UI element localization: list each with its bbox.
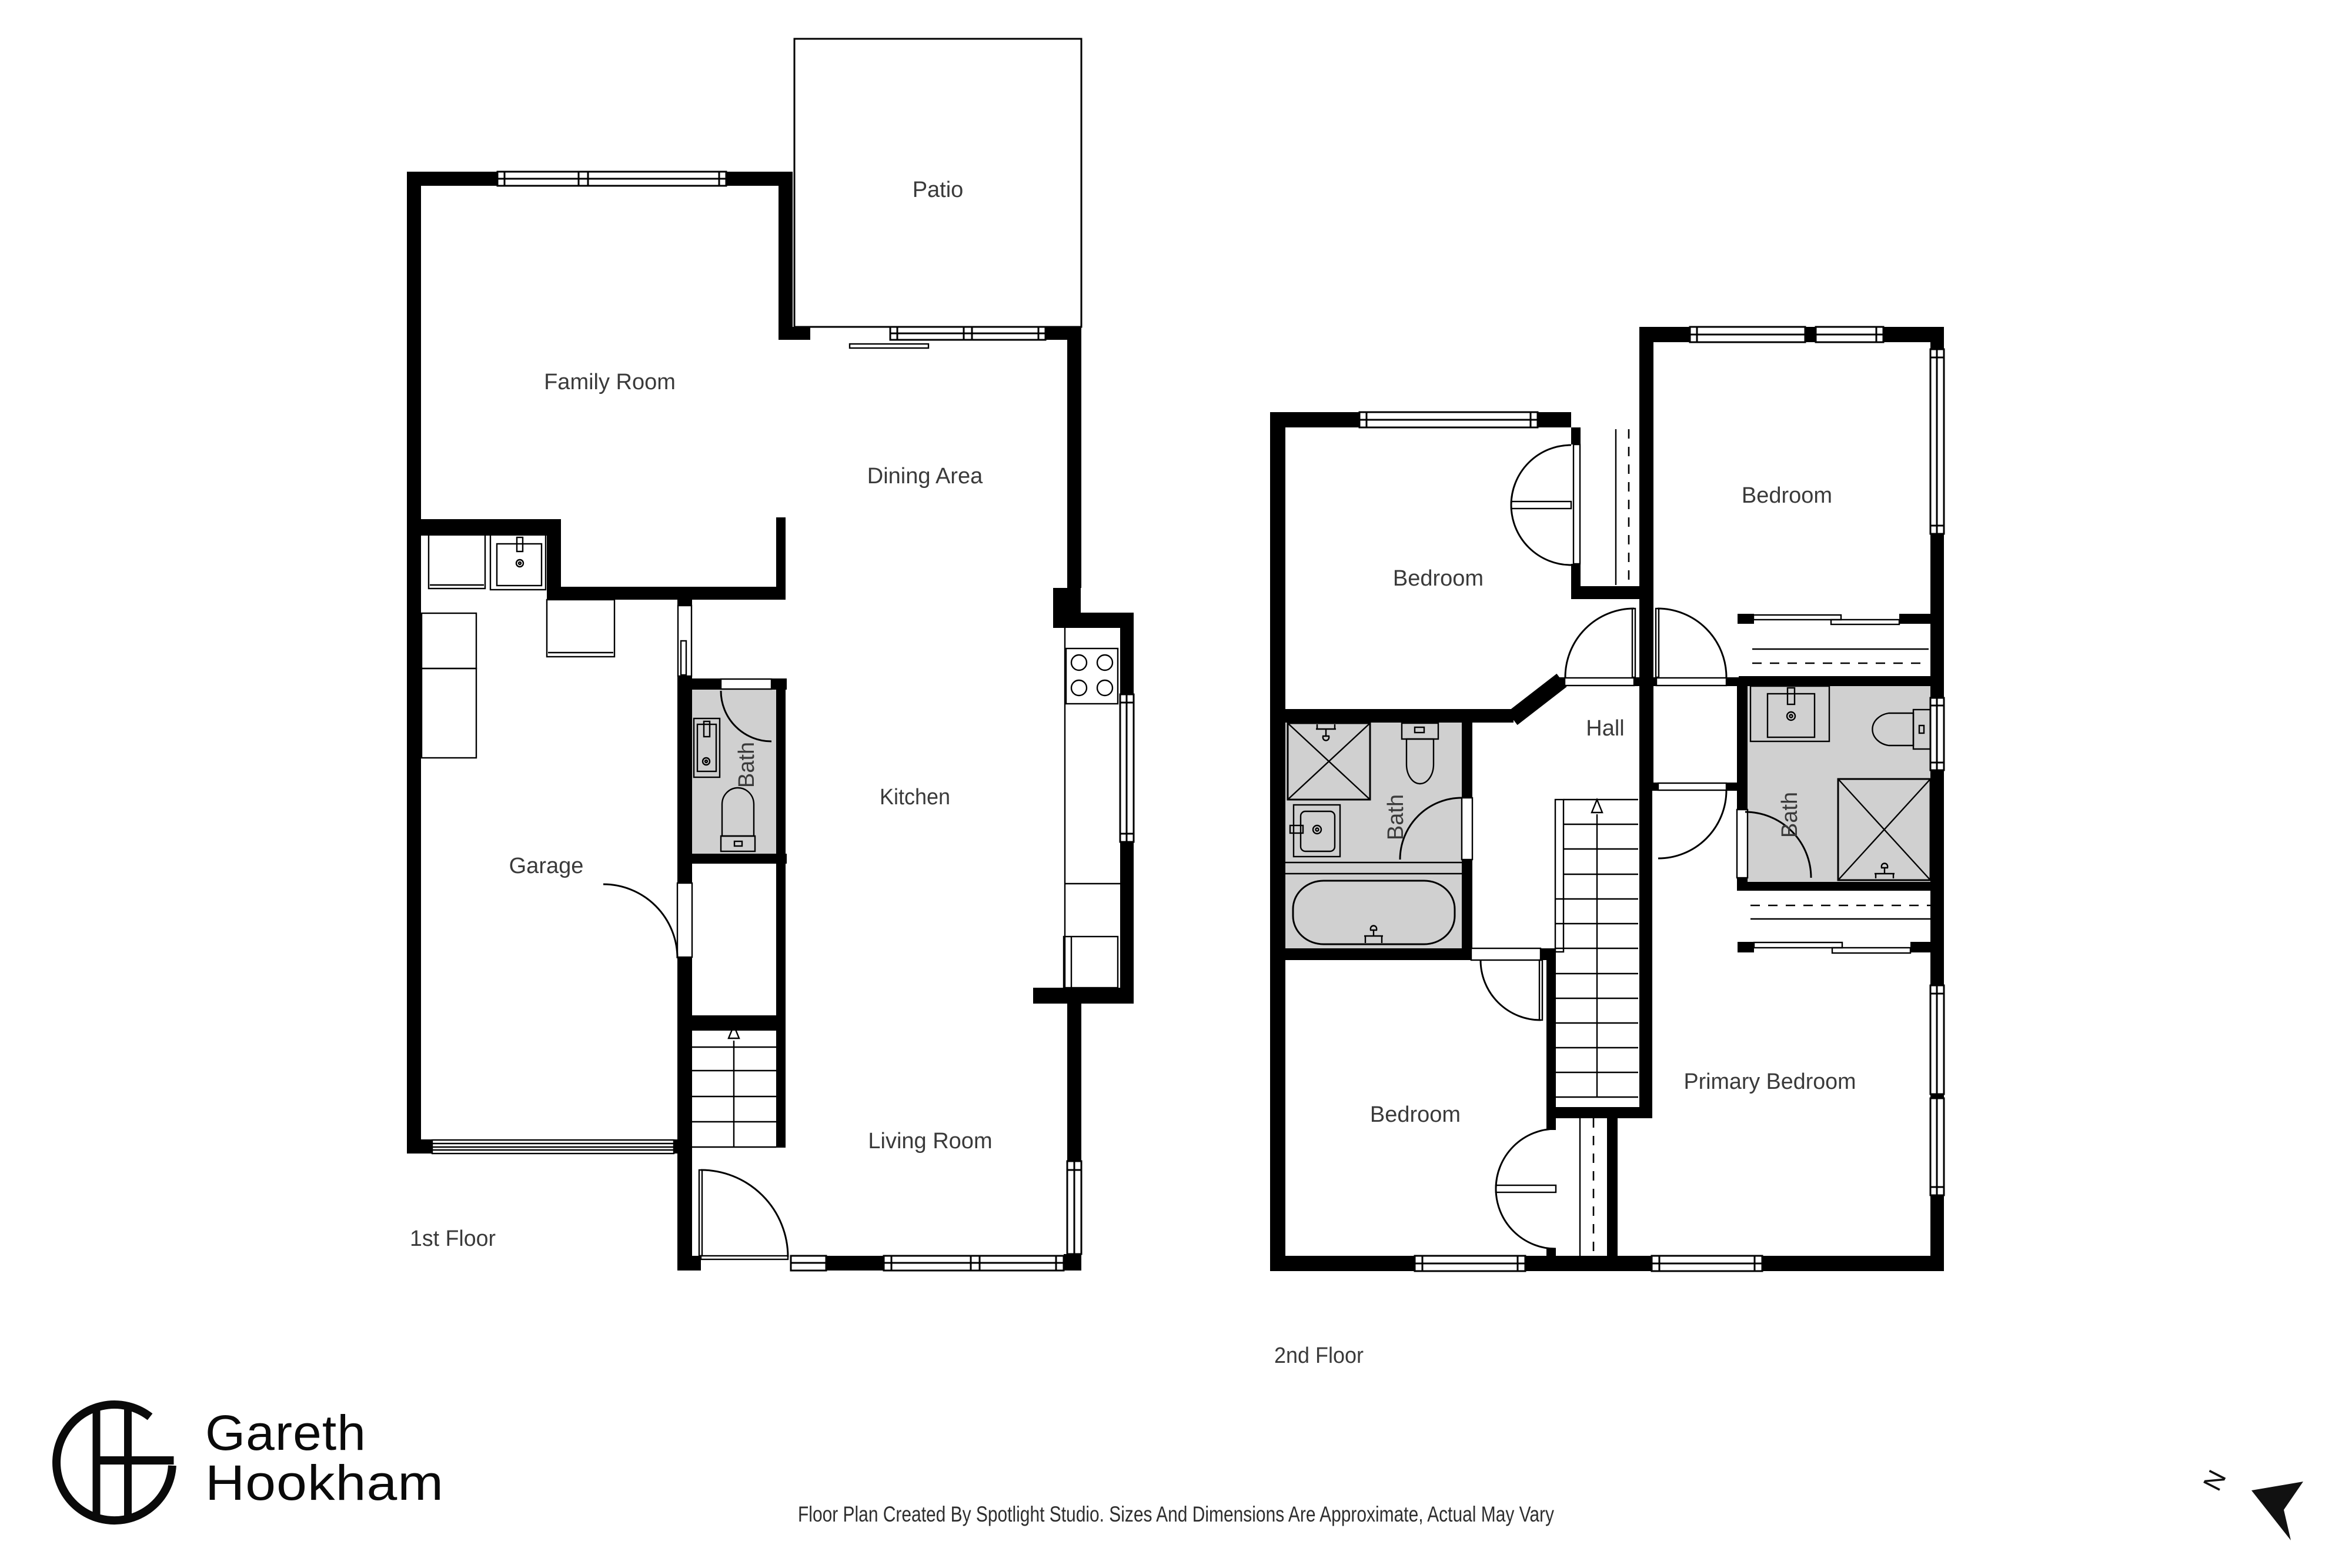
svg-text:Living Room: Living Room <box>868 1129 992 1154</box>
svg-text:Dining Area: Dining Area <box>867 464 983 489</box>
svg-text:Gareth: Gareth <box>205 1405 366 1460</box>
svg-text:Bath: Bath <box>734 742 759 788</box>
svg-text:Bedroom: Bedroom <box>1742 483 1832 508</box>
svg-text:Hookham: Hookham <box>205 1455 444 1510</box>
svg-text:Family Room: Family Room <box>544 370 676 394</box>
svg-text:2nd Floor: 2nd Floor <box>1274 1343 1364 1368</box>
svg-text:Bath: Bath <box>1384 794 1408 840</box>
svg-text:Bath: Bath <box>1778 792 1802 838</box>
svg-text:Bedroom: Bedroom <box>1370 1102 1461 1127</box>
svg-text:Kitchen: Kitchen <box>880 785 950 810</box>
svg-text:1st Floor: 1st Floor <box>410 1226 496 1251</box>
svg-text:Patio: Patio <box>913 178 964 202</box>
svg-text:Bedroom: Bedroom <box>1393 566 1484 591</box>
svg-text:Primary Bedroom: Primary Bedroom <box>1684 1069 1856 1094</box>
svg-text:Garage: Garage <box>509 854 584 878</box>
svg-text:Floor Plan Created By Spotligh: Floor Plan Created By Spotlight Studio. … <box>798 1502 1554 1526</box>
svg-text:Hall: Hall <box>1586 716 1624 741</box>
